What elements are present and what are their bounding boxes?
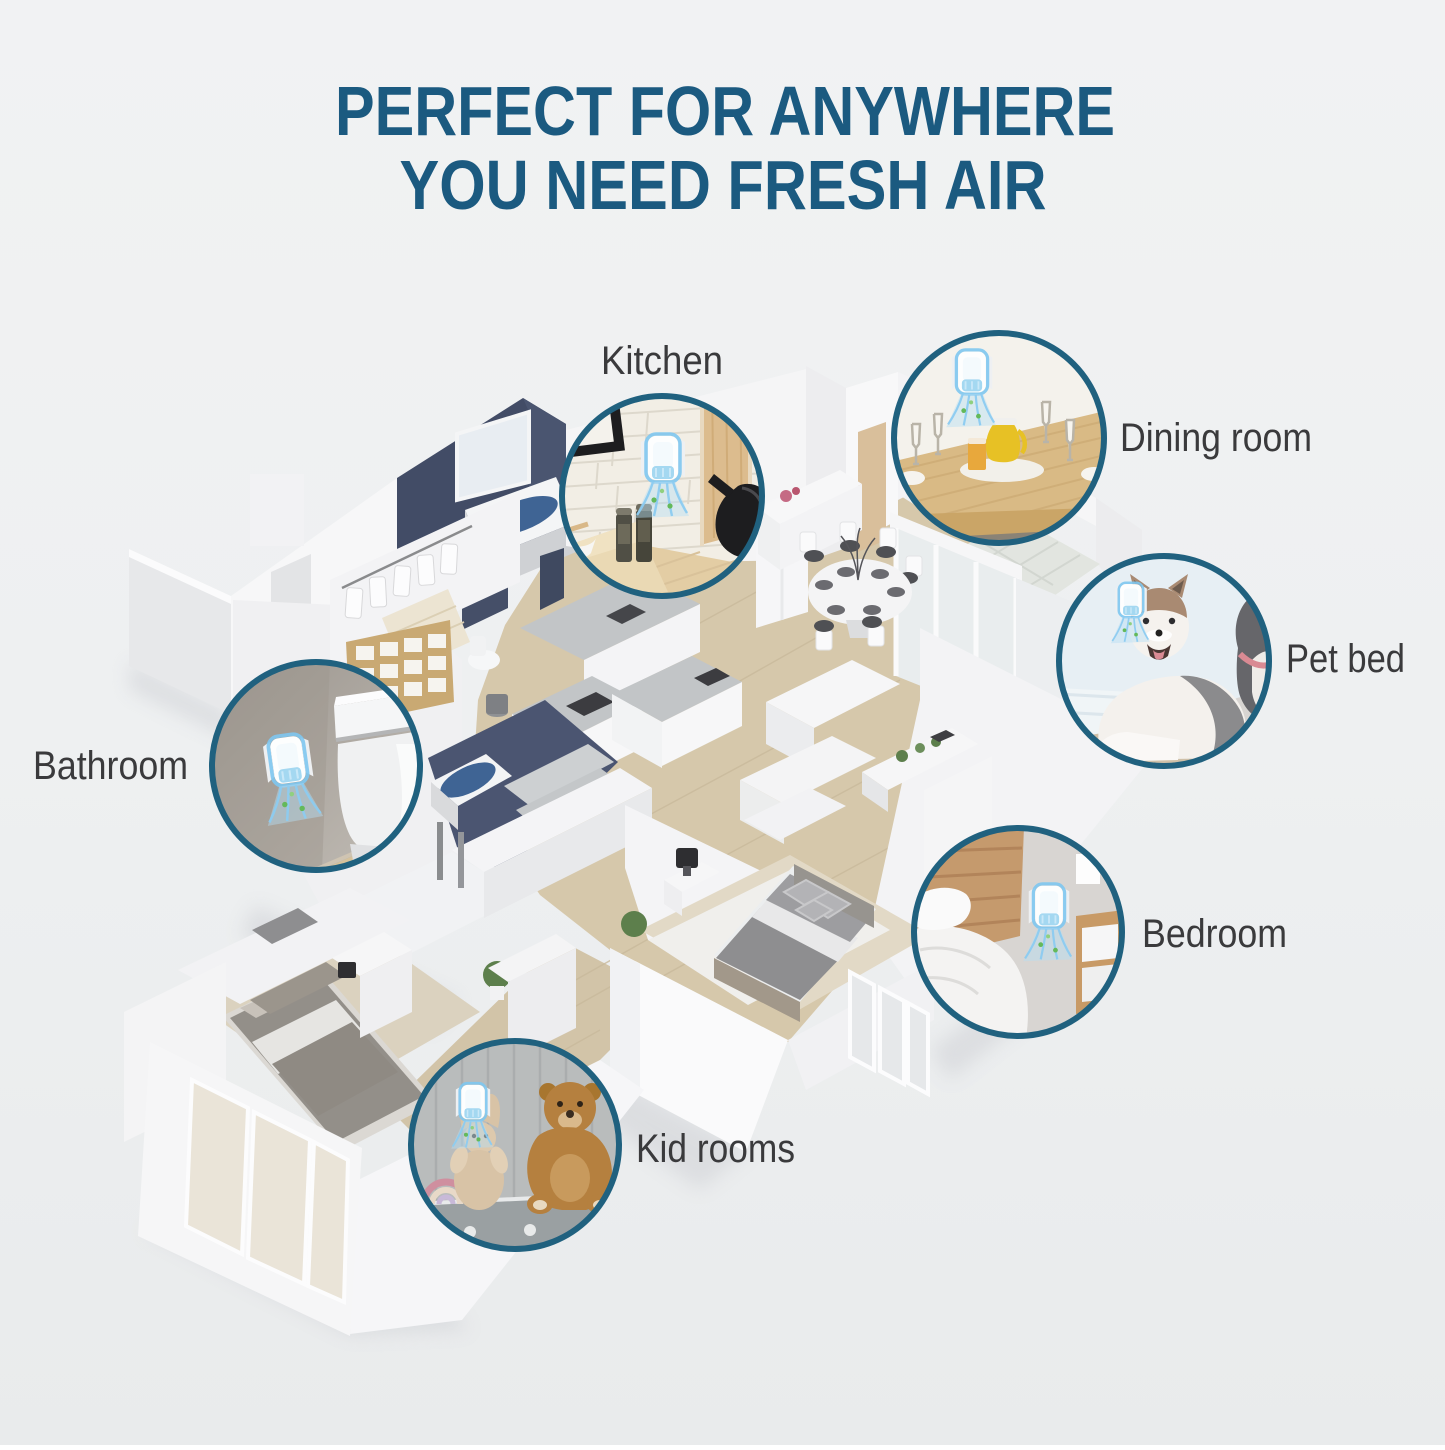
svg-text:Kid rooms: Kid rooms: [636, 1127, 795, 1171]
svg-text:PERFECT FOR ANYWHERE: PERFECT FOR ANYWHERE: [335, 72, 1115, 150]
svg-text:Dining room: Dining room: [1120, 416, 1312, 460]
svg-text:Bedroom: Bedroom: [1142, 912, 1287, 956]
svg-text:Bathroom: Bathroom: [33, 744, 188, 788]
svg-text:Kitchen: Kitchen: [601, 339, 723, 383]
svg-text:Pet bed: Pet bed: [1286, 637, 1405, 681]
svg-text:YOU NEED FRESH AIR: YOU NEED FRESH AIR: [400, 146, 1047, 224]
